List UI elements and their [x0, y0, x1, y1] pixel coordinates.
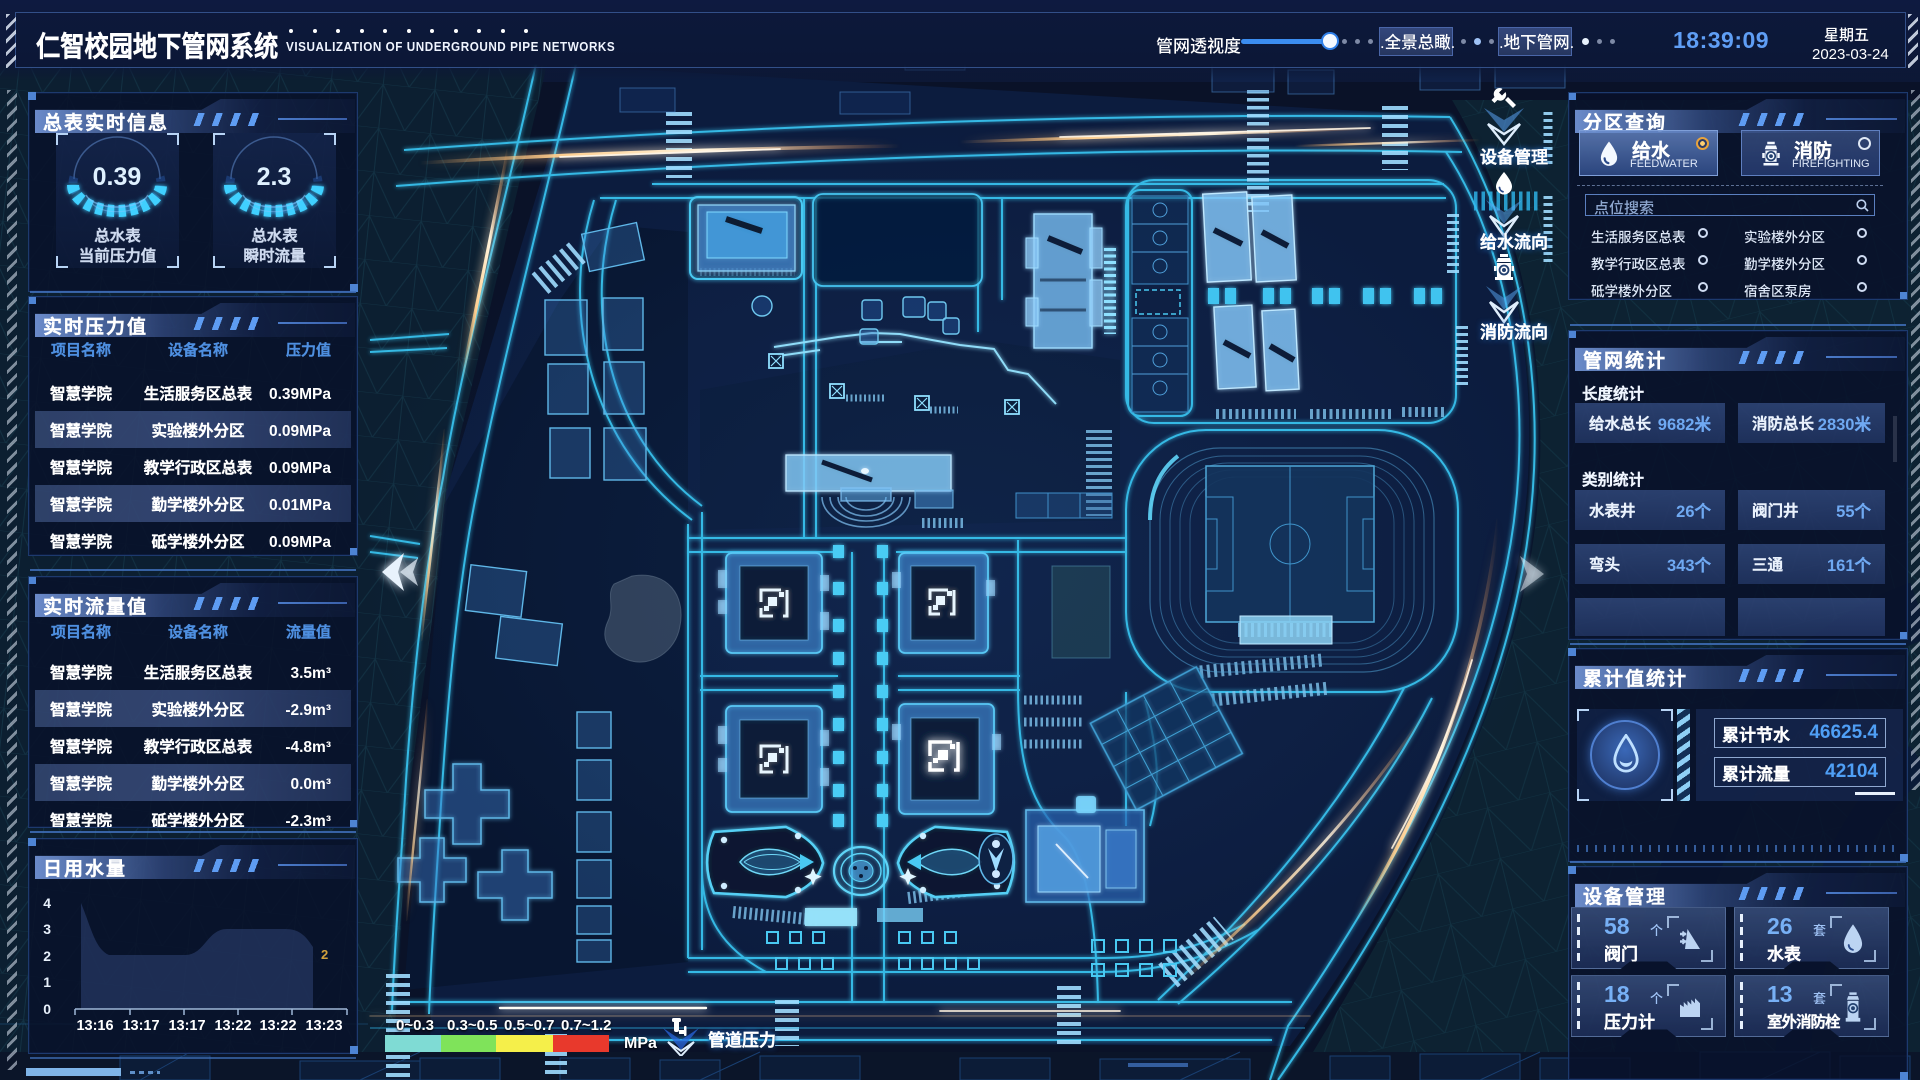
svg-text:2: 2: [321, 947, 328, 962]
svg-text:3: 3: [43, 921, 51, 937]
svg-text:13:22: 13:22: [214, 1018, 251, 1034]
svg-text:13:17: 13:17: [168, 1018, 205, 1034]
svg-text:13:22: 13:22: [259, 1018, 296, 1034]
svg-text:13:17: 13:17: [122, 1018, 159, 1034]
svg-text:2: 2: [43, 948, 51, 964]
svg-text:1: 1: [43, 974, 51, 990]
svg-text:0: 0: [43, 1001, 51, 1017]
svg-text:13:16: 13:16: [76, 1018, 113, 1034]
svg-text:13:23: 13:23: [305, 1018, 342, 1034]
svg-text:4: 4: [43, 895, 51, 911]
